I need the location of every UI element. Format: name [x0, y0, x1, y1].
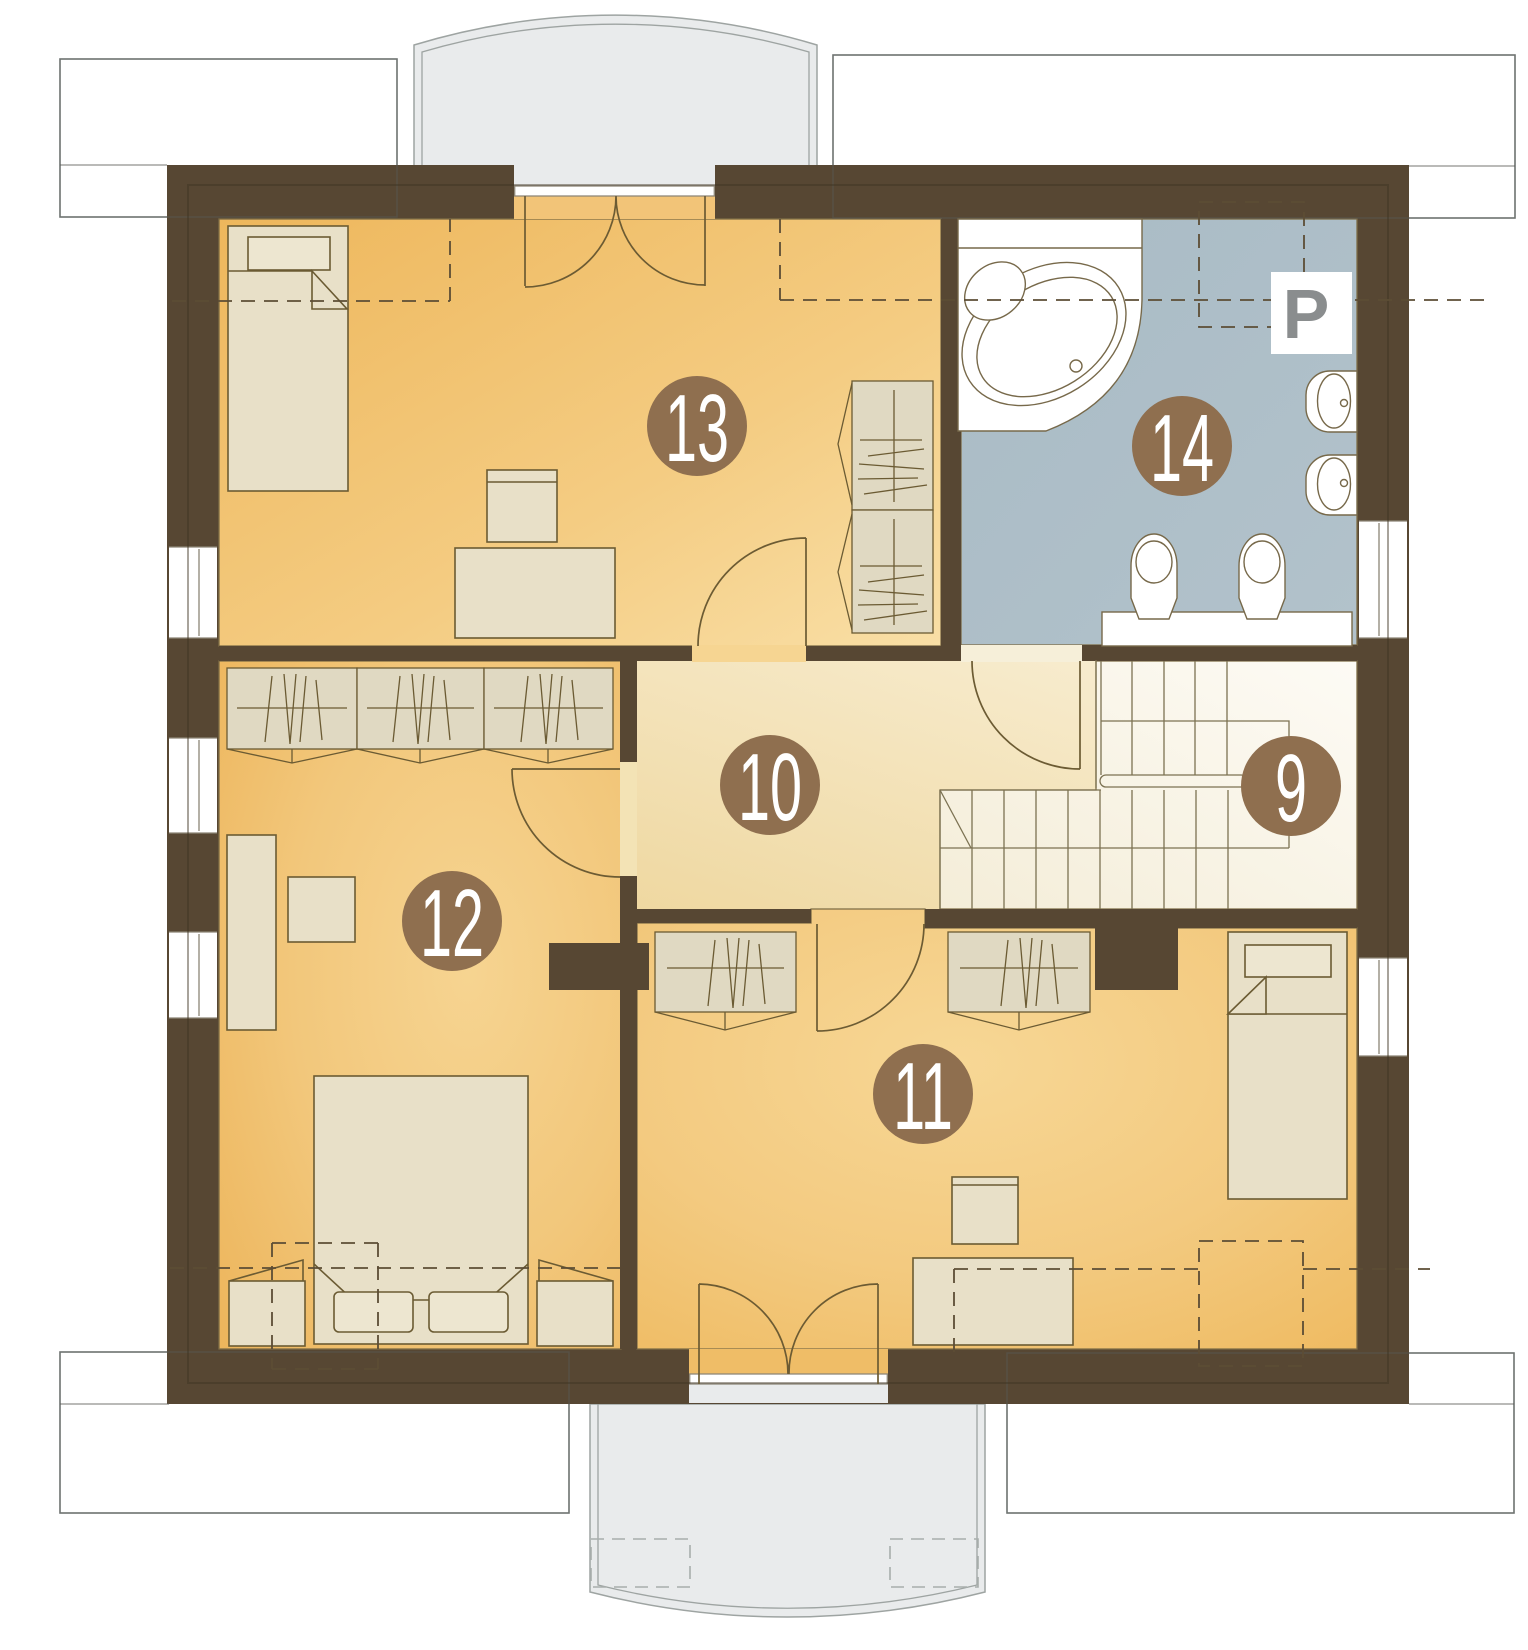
svg-text:13: 13 [665, 374, 729, 482]
svg-text:9: 9 [1275, 734, 1307, 842]
svg-text:10: 10 [738, 733, 802, 841]
svg-text:14: 14 [1150, 394, 1214, 502]
svg-text:12: 12 [420, 869, 484, 977]
svg-text:P: P [1283, 275, 1330, 353]
svg-text:11: 11 [893, 1042, 953, 1150]
